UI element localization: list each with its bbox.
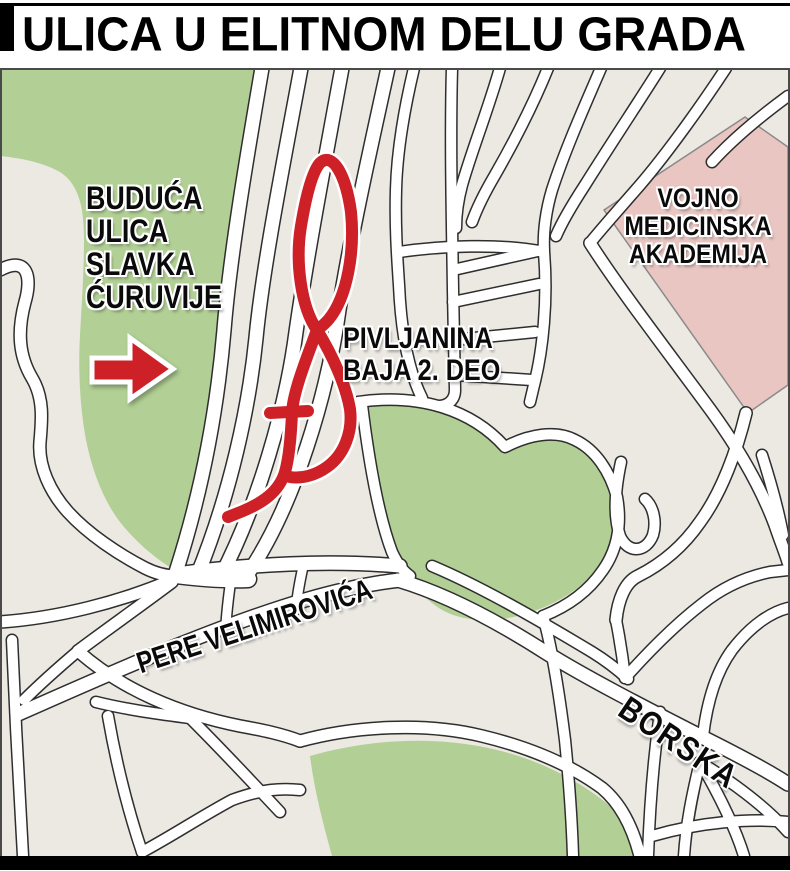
map-bottom-bar xyxy=(0,856,790,870)
label-pivljanina-baja: PIVLJANINA BAJA 2. DEO xyxy=(343,323,500,387)
page-title: ULICA U ELITNOM DELU GRADA xyxy=(22,6,746,62)
map: BUDUĆA ULICA SLAVKA ĆURUVIJE PIVLJANINA … xyxy=(0,68,790,870)
label-future-street: BUDUĆA ULICA SLAVKA ĆURUVIJE xyxy=(86,182,222,314)
infographic-page: ULICA U ELITNOM DELU GRADA xyxy=(0,0,790,871)
label-vojno-medicinska-akademija: VOJNO MEDICINSKA AKADEMIJA xyxy=(612,184,784,268)
headline-block-bar xyxy=(0,3,14,51)
